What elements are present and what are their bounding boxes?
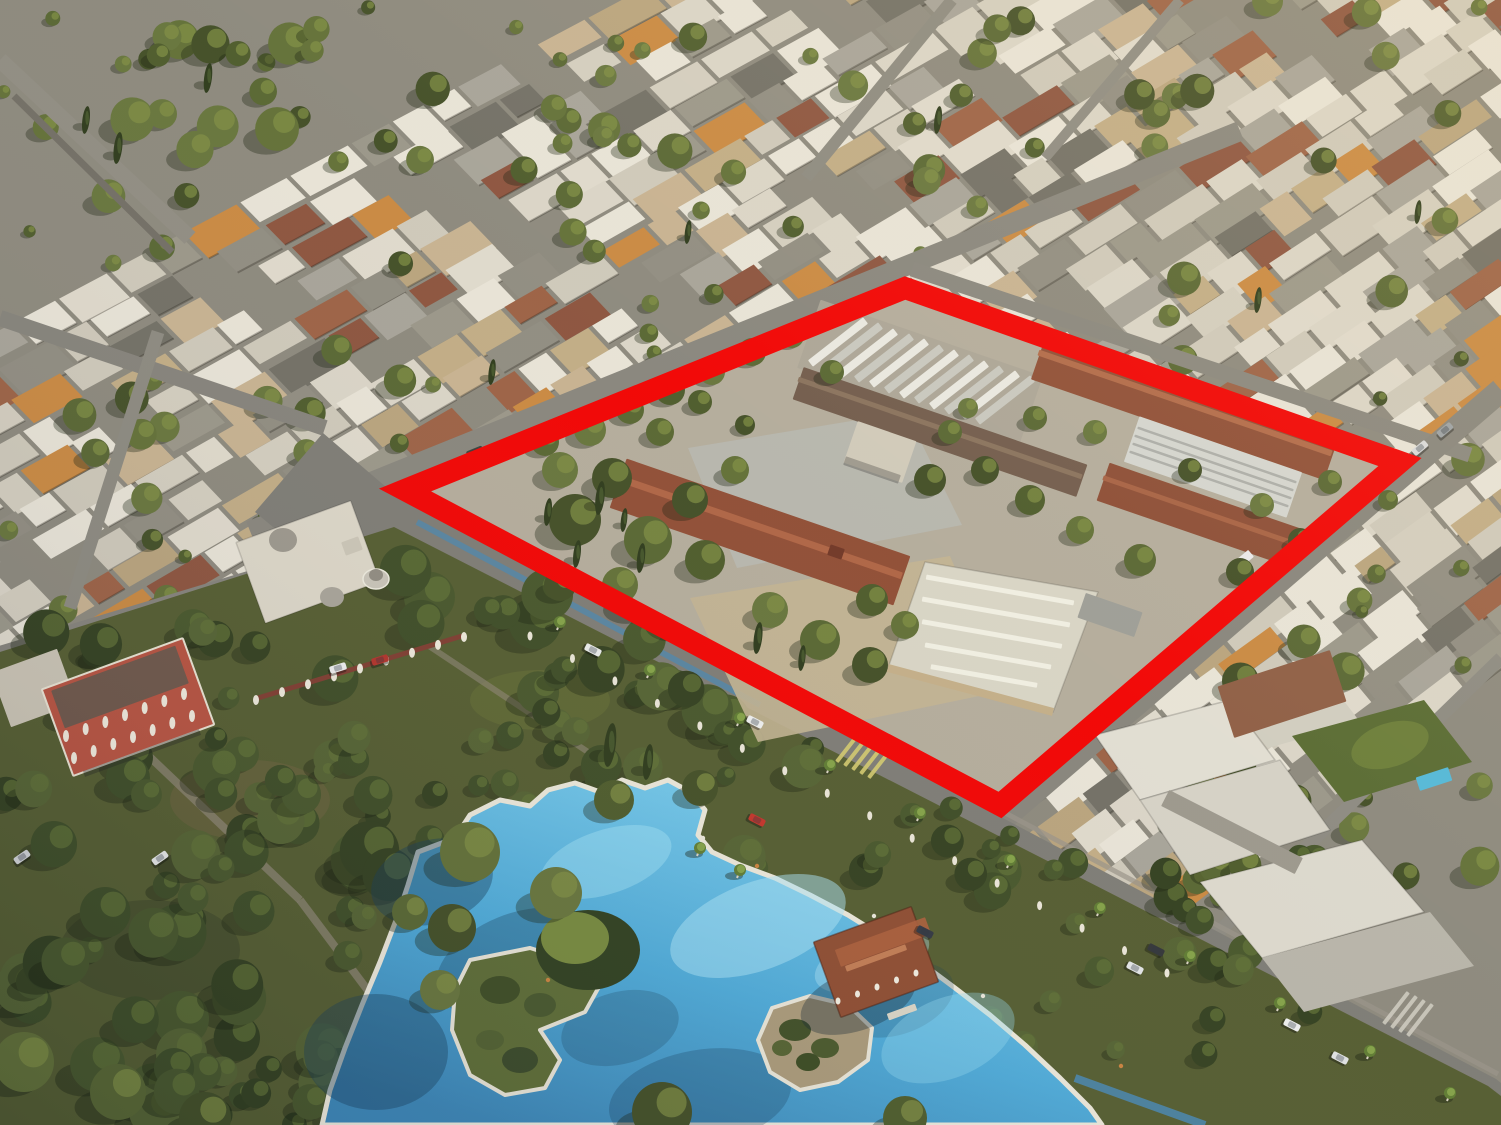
light-overlay (0, 0, 1501, 1125)
aerial-photograph: Aerial drone photograph of a city with a… (0, 0, 1501, 1125)
aerial-photo-canvas: Aerial drone photograph of a city with a… (0, 0, 1501, 1125)
